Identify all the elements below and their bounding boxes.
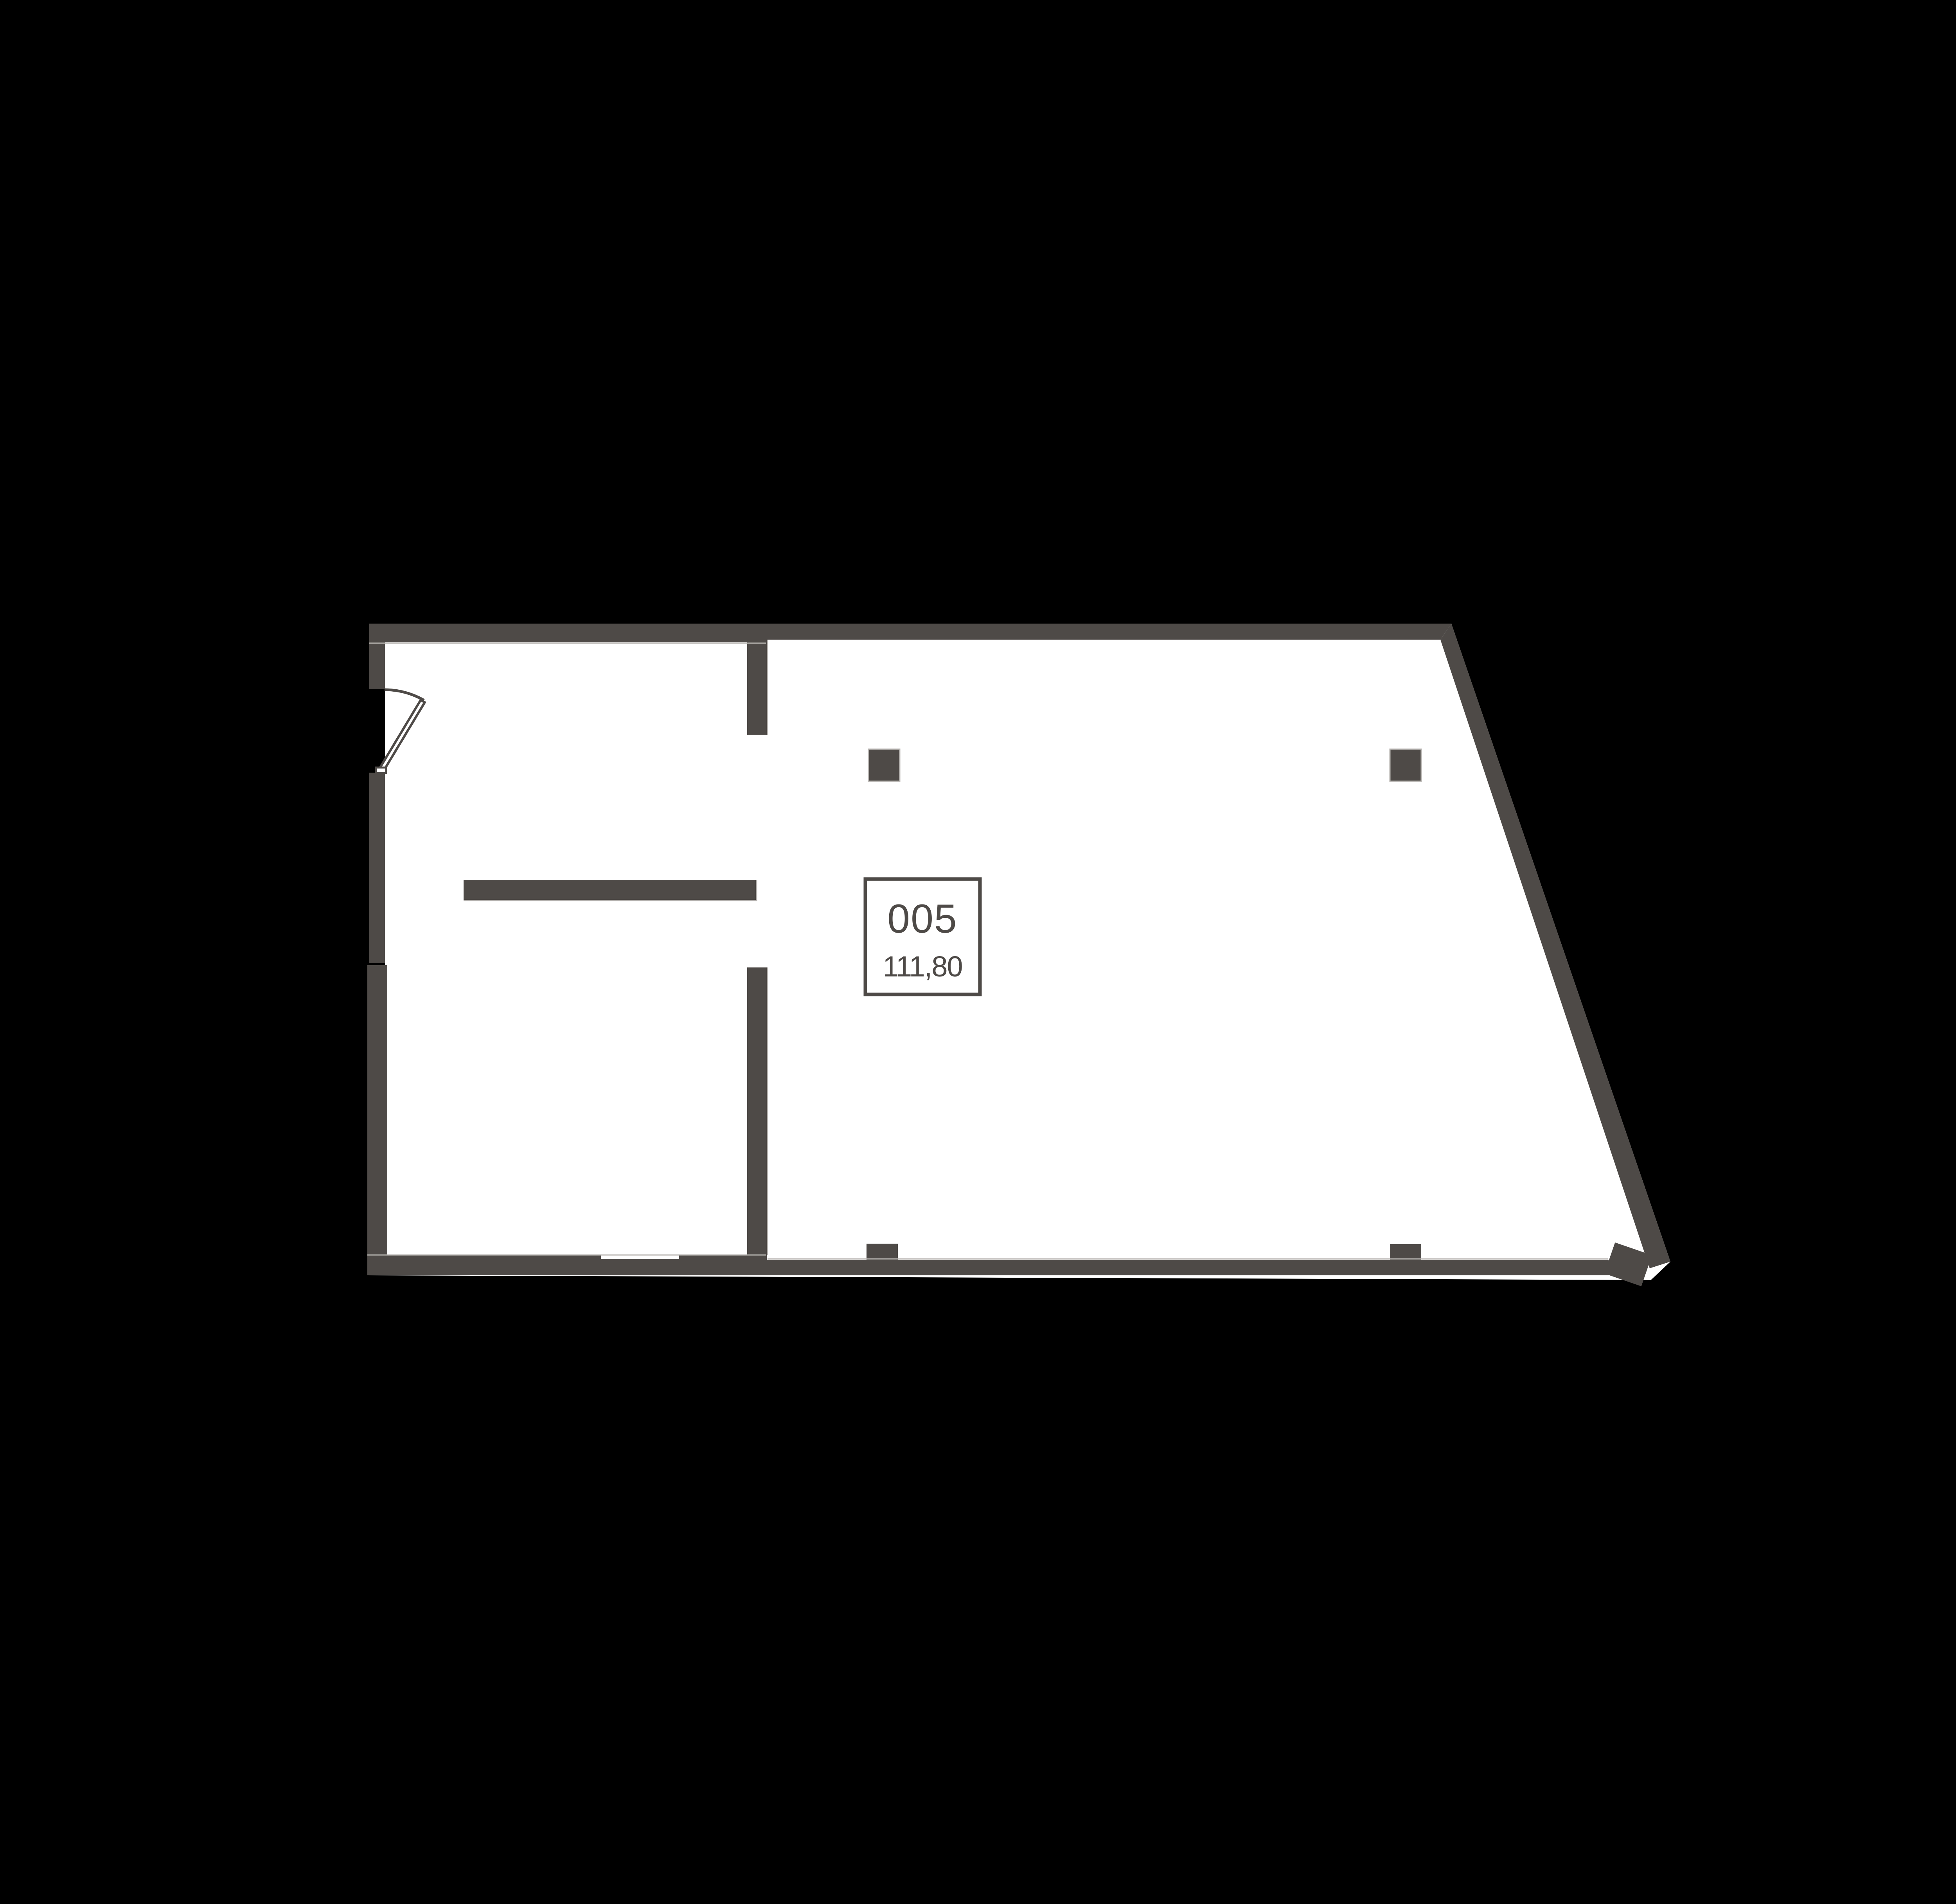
partition-wall-upper bbox=[747, 640, 767, 735]
room-area: 111,80 bbox=[883, 950, 962, 983]
wall-left-middle bbox=[369, 773, 385, 963]
wall-left-lower bbox=[367, 965, 387, 1275]
room-label: 005 111,80 bbox=[865, 879, 980, 994]
floor-plan-canvas: 005 111,80 bbox=[0, 0, 1956, 1904]
wall-top-right-section bbox=[767, 624, 1451, 640]
column-top-right bbox=[1390, 749, 1421, 781]
wall-left-upper bbox=[369, 624, 385, 689]
wall-bottom-right-section bbox=[767, 1260, 1609, 1275]
room-number: 005 bbox=[887, 896, 958, 942]
column-bottom-left bbox=[867, 1244, 898, 1260]
door-hinge-plate bbox=[376, 768, 386, 773]
wall-bottom-left-section bbox=[367, 1255, 767, 1275]
wall-top-left-section bbox=[369, 624, 767, 642]
bottom-wall-recess bbox=[601, 1255, 679, 1259]
partition-wall-lower bbox=[747, 967, 767, 1256]
column-bottom-right bbox=[1390, 1244, 1421, 1260]
stub-wall-horizontal bbox=[464, 880, 756, 900]
column-top-left bbox=[868, 749, 900, 781]
